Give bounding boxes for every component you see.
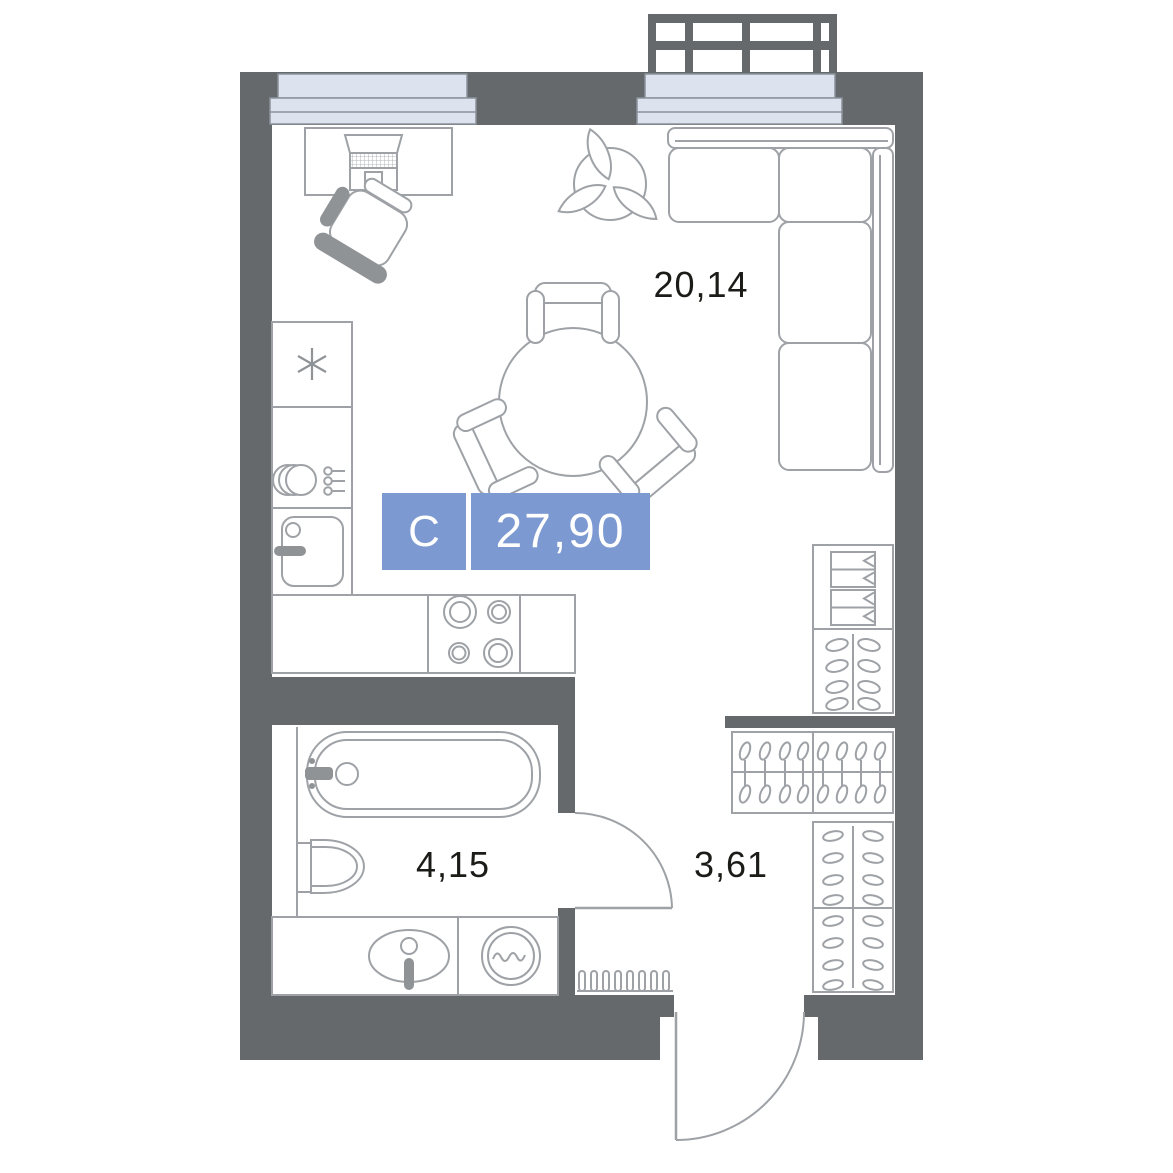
- wall-bathroom-side-upper: [558, 725, 575, 813]
- toilet-icon: [297, 840, 364, 893]
- wall-right: [895, 72, 923, 1060]
- bathroom-door-swing-icon: [575, 813, 672, 908]
- room-area-label-hallway: 3,61: [671, 844, 791, 886]
- kitchen-sink-icon: [274, 517, 343, 586]
- total-area-badge: 27,90: [471, 493, 650, 570]
- wall-left: [240, 72, 272, 1060]
- bathtub-icon: [305, 732, 540, 817]
- wall-bottom-right: [818, 995, 923, 1060]
- vanity-counter: [272, 917, 558, 995]
- room-area-label-bathroom: 4,15: [393, 844, 513, 886]
- washing-machine-icon: [482, 927, 540, 985]
- apartment-type-badge: С: [382, 493, 466, 570]
- wardrobe-drawers-icon: [813, 545, 893, 713]
- room-area-label-living: 20,14: [636, 264, 766, 306]
- wall-bathroom-top: [240, 677, 575, 725]
- laptop-screen: [345, 135, 402, 153]
- entrance-door-swing-icon: [676, 1012, 804, 1140]
- floor-plan-canvas: 20,14 4,15 3,61 С 27,90: [0, 0, 1173, 1173]
- floor-plan-svg: [0, 0, 1173, 1173]
- door-jamb-right: [804, 995, 818, 1017]
- plant-icon: [554, 126, 661, 227]
- balcony-railing-icon: [648, 14, 837, 72]
- window-right: [637, 74, 842, 124]
- door-jamb-left: [660, 995, 674, 1017]
- window-left: [270, 74, 476, 124]
- wall-bathroom-side-lower: [558, 908, 575, 995]
- wardrobe-hangers-icon: [732, 732, 893, 813]
- wall-bottom-left: [240, 995, 660, 1060]
- radiator-icon: [577, 971, 673, 991]
- dining-table-icon: [499, 328, 647, 476]
- wardrobe-hangers-side-icon: [813, 822, 893, 992]
- laptop-keyboard: [350, 153, 397, 168]
- wall-hall-divider: [725, 716, 895, 728]
